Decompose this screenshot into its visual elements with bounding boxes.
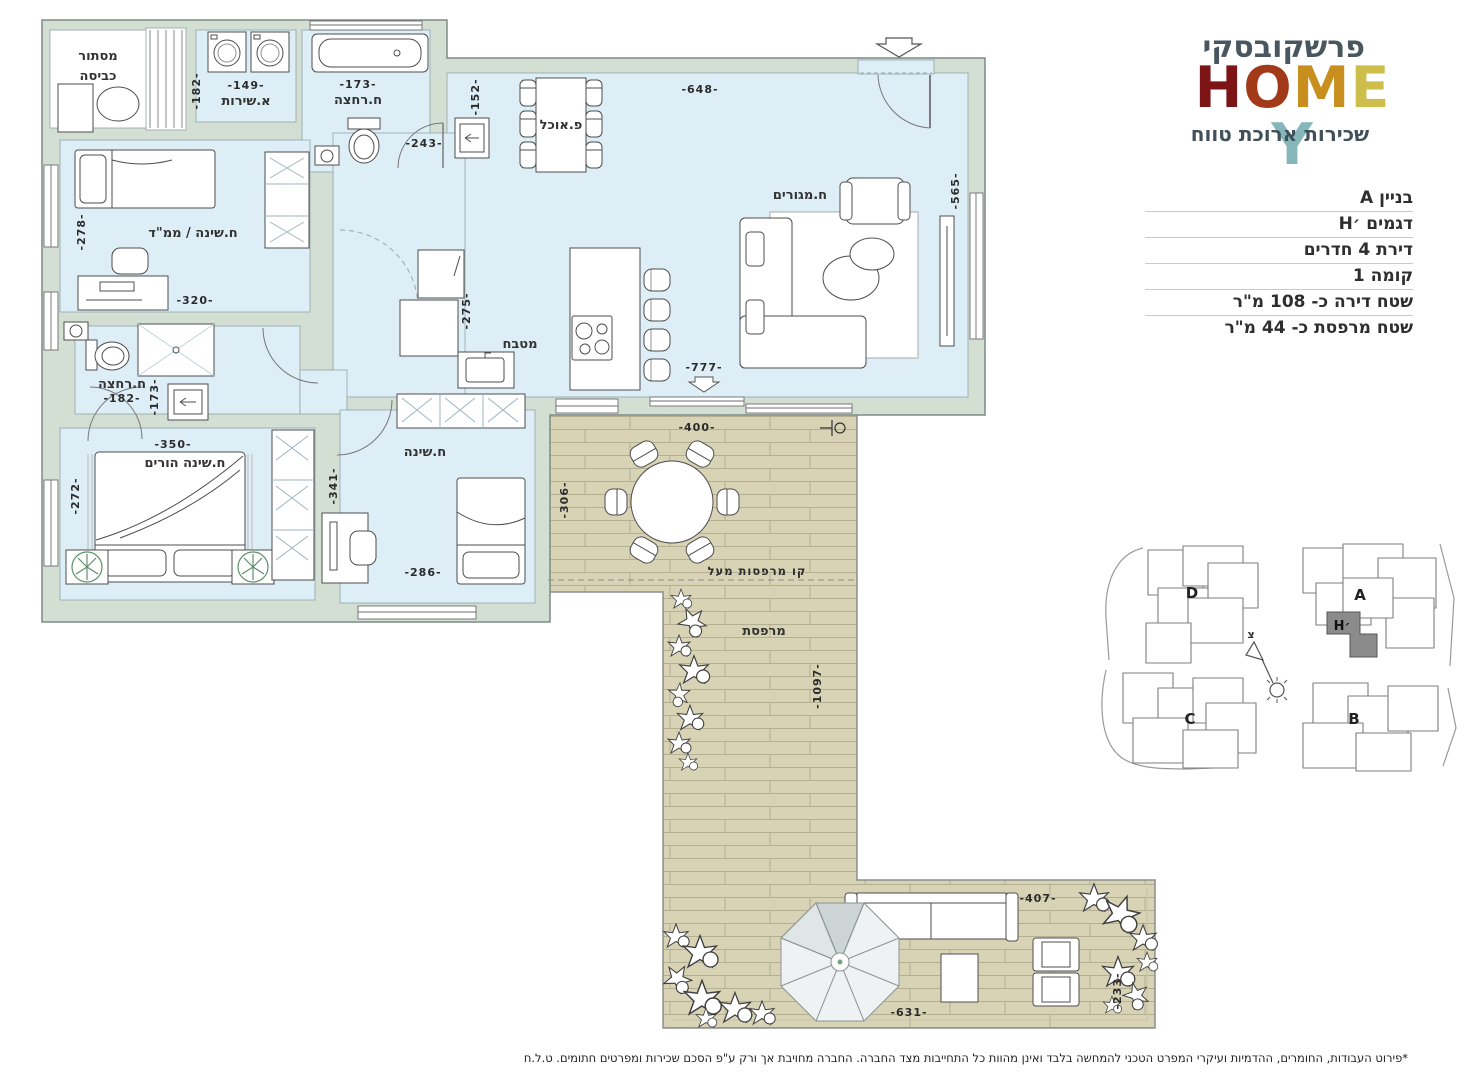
dim-label: -407- xyxy=(1019,892,1056,905)
dim-label: -278- xyxy=(75,213,88,250)
detail-floor: קומה 1 xyxy=(1145,263,1413,289)
washer-icon xyxy=(251,32,289,72)
label-laundry2: כביסה xyxy=(80,69,117,84)
dim-label: -565- xyxy=(949,172,962,209)
dim-label: -182- xyxy=(190,72,203,109)
dim-label: -233- xyxy=(1111,972,1124,1009)
brand-logo: HOMEY xyxy=(1185,60,1400,174)
label-bath-top: ח.רחצה xyxy=(334,93,382,108)
umbrella xyxy=(781,903,899,1021)
site-label-d: D xyxy=(1186,584,1198,602)
dim-label: -182- xyxy=(103,392,140,405)
label-kitchen: מטבח xyxy=(502,337,537,352)
room-hall2 xyxy=(300,370,347,414)
logo-letter: E xyxy=(1350,60,1390,117)
dim-label: -350- xyxy=(154,438,191,451)
dim-label: -320- xyxy=(176,294,213,307)
dim-label: -1097- xyxy=(811,663,824,709)
detail-rooms: דירת 4 חדרים xyxy=(1145,237,1413,263)
dim-label: -306- xyxy=(558,481,571,518)
dim-label: -275- xyxy=(460,292,473,329)
label-balcony: מרפסת xyxy=(742,624,786,639)
dim-label: -173- xyxy=(148,378,161,415)
detail-balcony-area: שטח מרפסת כ- 44 מ"ר xyxy=(1145,315,1413,341)
washer-icon xyxy=(208,32,246,72)
label-dining: פ.אוכל xyxy=(540,118,583,133)
dim-label: -648- xyxy=(681,83,718,96)
dim-label: -400- xyxy=(678,421,715,434)
site-label-c: C xyxy=(1184,710,1195,728)
label-bath-master: ח.רחצה xyxy=(98,377,146,392)
dim-label: -243- xyxy=(405,137,442,150)
label-saferoom: ח.שינה / ממ"ד xyxy=(148,226,237,241)
label-laundry: מסתור xyxy=(78,49,117,64)
floor-plan: מסתור כביסה -149- א.שירות -182- -173- ח.… xyxy=(0,0,1160,1045)
apartment-details: בניין A דגמים ׳H דירת 4 חדרים קומה 1 שטח… xyxy=(1145,186,1413,341)
master-furniture xyxy=(66,430,314,584)
page: מסתור כביסה -149- א.שירות -182- -173- ח.… xyxy=(0,0,1477,1080)
label-balcony-line: קו מרפסות מעל xyxy=(708,564,807,578)
compass-north-letter: צ xyxy=(1247,628,1254,641)
site-label-unit: H׳ xyxy=(1334,619,1351,634)
dim-label: -341- xyxy=(327,467,340,504)
entry-arrow-icon xyxy=(877,38,921,57)
label-bedroom: ח.שינה xyxy=(404,445,446,460)
disclaimer: *פירוט העבודות, החומרים, ההדמיות ועיקרי … xyxy=(400,1051,1408,1065)
site-label-a: A xyxy=(1354,586,1366,604)
dim-label: -152- xyxy=(469,78,482,115)
bath-master-fixtures xyxy=(64,322,214,376)
dim-label: -173- xyxy=(339,78,376,91)
detail-apartment-area: שטח דירה כ- 108 מ"ר xyxy=(1145,289,1413,315)
dim-label: -631- xyxy=(890,1006,927,1019)
logo-letter: O xyxy=(1243,60,1292,117)
north-compass-icon xyxy=(1246,642,1287,703)
brand-tagline: שכירות ארוכת טווח xyxy=(1190,122,1370,146)
detail-model: דגמים ׳H xyxy=(1145,211,1413,237)
site-label-b: B xyxy=(1348,710,1359,728)
site-plan: D C A B H׳ צ xyxy=(1088,538,1468,773)
label-living: ח.מגורים xyxy=(773,188,827,203)
dim-label: -149- xyxy=(227,79,264,92)
label-service-wc: א.שירות xyxy=(221,94,270,109)
dim-label: -272- xyxy=(69,477,82,514)
dim-label: -777- xyxy=(685,361,722,374)
logo-letter: H xyxy=(1195,60,1244,117)
logo-letter: M xyxy=(1293,60,1351,117)
detail-building: בניין A xyxy=(1145,186,1413,211)
dim-label: -286- xyxy=(404,566,441,579)
label-master: ח.שינה הורים xyxy=(144,456,225,471)
